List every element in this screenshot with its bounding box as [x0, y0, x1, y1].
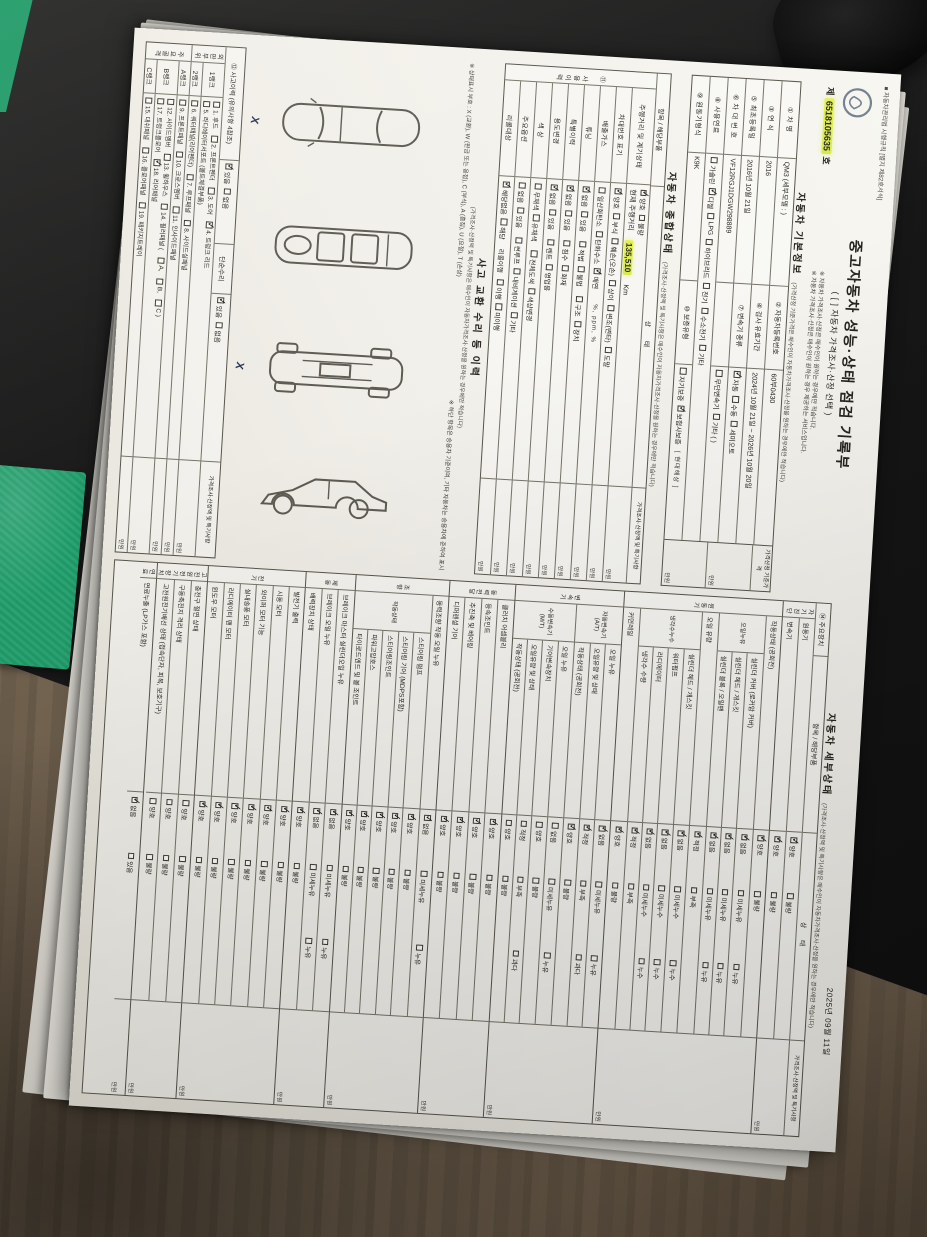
option: 없음 [720, 833, 733, 890]
option-label: 미세누수 [640, 892, 651, 917]
option: 양호 [435, 816, 448, 873]
option-label: 없음 [327, 817, 338, 830]
option-label: 없음 [707, 840, 718, 853]
checkbox [203, 101, 210, 108]
price-unit: 만원 [524, 564, 534, 575]
checkbox [565, 210, 572, 217]
car-side-view-icon [220, 458, 440, 529]
price-unit: 만원 [163, 542, 173, 553]
option-label: 미세누유 [718, 897, 729, 922]
checkbox [322, 939, 329, 946]
doc-no-prefix: 제 [825, 87, 835, 96]
group-label: 리콜이행 [496, 248, 507, 273]
checkbox [717, 963, 724, 970]
option-label: 불법 [575, 274, 586, 287]
checkbox [248, 804, 255, 811]
checkbox [552, 823, 559, 830]
checkbox [703, 282, 710, 289]
checkbox [277, 862, 284, 869]
option-label: 양호 [565, 832, 576, 845]
option: 16. 플로어패널 [138, 147, 150, 196]
checkbox [326, 865, 333, 872]
option: 화재 [559, 265, 570, 286]
option-label: 불량 [386, 877, 397, 890]
option: 부족 [574, 880, 588, 954]
checkbox [346, 810, 353, 817]
option: 자동 [731, 371, 742, 392]
checkbox [544, 952, 551, 959]
option: 양호 [276, 806, 289, 863]
option: 적정 [578, 824, 591, 881]
option: 있음 [579, 211, 590, 232]
checkbox [187, 174, 194, 181]
checkbox [473, 818, 480, 825]
option-label: 양호 [788, 845, 799, 858]
option: 양호 [610, 826, 623, 883]
checkbox [211, 136, 218, 143]
option: 불량 [140, 854, 154, 928]
option-label: 불량 [784, 901, 795, 914]
option: 11. 인사이드패널 [169, 207, 181, 261]
option-label: 불량 [530, 886, 541, 899]
option-group: 전체도색색상변경 [525, 250, 539, 321]
price-unit: 만원 [419, 1100, 429, 1111]
option-label: 전기 [700, 291, 711, 304]
option: 없음 [564, 185, 575, 206]
option: 누수 [648, 959, 662, 1031]
checkbox [497, 279, 504, 286]
checkbox [580, 880, 587, 887]
option-label: 불량 [176, 864, 187, 877]
checkbox [421, 871, 428, 878]
option: 양호 [178, 800, 191, 857]
option: 양호 [637, 190, 648, 211]
option: 3. 도어 [205, 187, 216, 215]
option-label: 양호 [454, 825, 465, 838]
checkbox [754, 891, 761, 898]
option-label: 양호 [196, 809, 207, 822]
option-label: 미세누유 [545, 887, 556, 912]
checkbox [615, 188, 622, 195]
photo-scene: 사 칼 ■ 자동차관리법 시행규칙 [별지 제82호서식] 2025년 09월 … [0, 0, 927, 1237]
option-label: 보험사보증 [674, 413, 686, 445]
price-unit: 만원 [604, 569, 614, 580]
option: 양호 [785, 837, 798, 894]
checkbox [722, 889, 729, 896]
option: 있음 [215, 297, 226, 318]
option-label: 적법 [577, 249, 588, 262]
price-cell: 만원 [483, 1021, 597, 1123]
checkbox [217, 297, 224, 304]
option-label: 양호 [612, 196, 623, 209]
checkbox [709, 188, 716, 195]
option-label: 미세누유 [323, 873, 334, 898]
checkbox [376, 812, 383, 819]
checkbox [199, 801, 206, 808]
checkbox [264, 805, 271, 812]
price-unit: 만원 [508, 563, 518, 574]
option: 없음 [580, 186, 591, 207]
checkbox [342, 866, 349, 873]
checkbox [733, 964, 740, 971]
checkbox [131, 797, 138, 804]
option-label: 무채색 [532, 192, 543, 211]
option: 누유 [727, 964, 741, 1036]
option-label: 4. 트렁크 리드 [202, 230, 213, 269]
option-label: 렌트 [545, 247, 556, 260]
option-label: 적정 [691, 840, 702, 853]
option-label: 불량 [768, 900, 779, 913]
option: 있음 [515, 207, 526, 228]
option-group: 렌트영업용 [543, 239, 556, 292]
checkbox [501, 219, 508, 226]
checkbox [702, 307, 709, 314]
option-label: 불량 [451, 881, 462, 894]
option-label: 12. 사이드멤버 [163, 107, 174, 148]
option-label: 불량 [355, 875, 366, 888]
option-label: 양호 [771, 844, 782, 857]
option: 미세누유 [716, 889, 730, 963]
option-label: 양호 [405, 822, 416, 835]
checkbox [495, 304, 502, 311]
checkbox [643, 884, 650, 891]
option: 미세누유 [320, 865, 334, 939]
checkbox [157, 98, 164, 105]
subgroup-label: 작동상태 [353, 591, 432, 634]
option: 불량 [382, 869, 396, 943]
checkbox [503, 181, 510, 188]
checkbox [424, 815, 431, 822]
checkbox [732, 396, 739, 403]
checkbox [183, 800, 190, 807]
checkbox [173, 207, 180, 214]
checkbox [150, 798, 157, 805]
option: 불량 [636, 214, 647, 235]
detail-col-header: ⑭ 주요장치 [814, 603, 831, 656]
option: 양호 [563, 823, 576, 880]
option-label: 부식 [610, 221, 621, 234]
option: 불량 [431, 871, 445, 945]
option-group: 없음있음 [515, 182, 528, 228]
checkbox [195, 857, 202, 864]
overall-rows: 주행거리 및 계기상태양호불량현재 주행거리 135,510 Km만원차대번호 … [475, 80, 656, 582]
option-label: 15. 대쉬패널 [142, 106, 153, 141]
option-label: 없음 [213, 330, 224, 343]
checkbox [519, 182, 526, 189]
checkbox [184, 220, 191, 227]
option: 미세누유 [542, 878, 556, 952]
checkbox [228, 859, 235, 866]
price-unit: 만원 [129, 540, 139, 551]
option-label: 14. 필러패널 ( [157, 212, 168, 251]
checkbox [155, 300, 162, 307]
option-label: 세미오토 [727, 429, 739, 455]
option: 불량 [288, 863, 302, 937]
option: 미세누유 [415, 870, 429, 944]
option: 7. 루프패널 [183, 174, 194, 213]
option: 없음 [547, 822, 560, 879]
option: 썬루프 [512, 237, 524, 265]
price-unit: 만원 [485, 1104, 495, 1115]
option-label: 11. 인사이드패널 [169, 215, 181, 261]
option: 세미오토 [727, 421, 739, 455]
option-group: 해당없음해당 [498, 181, 512, 240]
option-label: 적정 [518, 829, 529, 842]
option-label: 해당 [498, 227, 509, 240]
option: 불량 [239, 860, 253, 934]
option-label: 7. 루프패널 [183, 182, 194, 213]
option: 없음 [736, 834, 749, 891]
checkbox [489, 819, 496, 826]
option-label: 양호 [613, 835, 624, 848]
checkbox [654, 959, 661, 966]
option-label: 과다 [510, 959, 521, 972]
checkbox [516, 237, 523, 244]
option-label: 이행 [494, 287, 505, 300]
option-label: 양호 [438, 824, 449, 837]
option-label: 없음 [129, 805, 140, 818]
option-label: 6. 쿼터패널(리어펜더) [186, 108, 199, 167]
option: 없음 [673, 830, 686, 887]
checkbox [678, 405, 685, 412]
checkbox [513, 950, 520, 957]
checkbox [599, 187, 606, 194]
price-cell: 만원 [418, 1017, 488, 1117]
option-label: 불량 [144, 862, 155, 875]
option: 불량 [447, 873, 461, 947]
checkbox [596, 231, 603, 238]
device-group: 원동기작동상태 (공회전)양호불량오일누유실린더 커버 (로커암 커버)없음미세… [593, 592, 784, 1134]
option-label: 양호 [343, 818, 354, 831]
checkbox [470, 874, 477, 881]
option: 19. 패키지트레이 [135, 202, 147, 257]
pen-x-mark: X [233, 360, 246, 370]
checkbox [408, 814, 415, 821]
checkbox [310, 864, 317, 871]
checkbox [294, 863, 301, 870]
option: 없음 [705, 832, 718, 889]
checkbox [605, 346, 612, 353]
option: 불량 [606, 882, 620, 956]
option-label: 없음 [549, 831, 560, 844]
checkbox [486, 875, 493, 882]
checkbox [615, 826, 622, 833]
option-label: 없음 [311, 816, 322, 829]
option: 양호 [753, 835, 766, 892]
option-label: 불량 [209, 866, 220, 879]
option: 없음 [594, 825, 607, 882]
option-label: 화재 [559, 273, 570, 286]
option: 탄화수소 [593, 231, 605, 265]
option: 미세누유 [701, 888, 715, 962]
checkbox [639, 215, 646, 222]
option-label: 불량 [160, 863, 171, 876]
option-label: 불량 [401, 878, 412, 891]
option: 적정 [626, 827, 639, 884]
option: 기타 ( ) [710, 413, 722, 443]
option-label: 탄화수소 [593, 239, 605, 265]
option-label: 19. 패키지트레이 [135, 211, 147, 257]
option-label: 영업용 [543, 272, 554, 291]
option-label: 적정 [580, 833, 591, 846]
option-label: 색상변경 [525, 296, 537, 322]
option: A, [157, 257, 165, 272]
option-label: 불량 [483, 883, 494, 896]
option-label: 없음 [516, 191, 527, 204]
option-label: 해당없음 [499, 190, 511, 216]
field-extra: [ 현대해상 ] [672, 451, 683, 489]
option: 없음 [657, 829, 670, 886]
option-label: 양호 [637, 198, 648, 211]
option: 침수 [561, 240, 572, 261]
option-label: 기타 ( ) [710, 422, 721, 443]
pen-x-mark: X [248, 115, 261, 125]
option: 누유 [316, 939, 330, 1011]
option-label: 불량 [225, 867, 236, 880]
checkbox [716, 370, 723, 377]
option: 디젤 [706, 188, 717, 209]
option-label: 불량 [370, 876, 381, 889]
option-label: 없음 [548, 193, 559, 206]
checkbox [631, 827, 638, 834]
checkbox [609, 280, 616, 287]
option-label: 부족 [625, 892, 636, 905]
option-group: 있음없음 [213, 297, 226, 343]
option: 9. 프론트패널 [176, 99, 188, 144]
option: 불량 [336, 866, 350, 940]
checkbox [453, 873, 460, 880]
option: 2. 프론트펜더 [207, 136, 219, 181]
option: 15. 대쉬패널 [142, 97, 154, 140]
option-group: 무채색유채색 [530, 183, 544, 242]
option-label: 불량 [275, 870, 286, 883]
option-label: 양호 [389, 821, 400, 834]
option: 10. 크로스멤버 [172, 151, 184, 200]
option: 없음 [221, 188, 232, 209]
checkbox [179, 99, 186, 106]
price-unit: 만원 [492, 562, 502, 573]
option: 양호 [500, 820, 513, 877]
price-unit: 만원 [178, 1086, 188, 1097]
checkbox [564, 879, 571, 886]
checkbox [404, 870, 411, 877]
option-label: 불량 [242, 868, 253, 881]
option-label: 일산화탄소 [595, 195, 607, 227]
checkbox [575, 954, 582, 961]
option: 양호 [194, 801, 207, 858]
option-label: 불량 [193, 865, 204, 878]
checkbox [707, 213, 714, 220]
checkbox [551, 184, 558, 191]
checkbox [521, 821, 528, 828]
checkbox [575, 321, 582, 328]
option: 해당 [498, 219, 509, 240]
checkbox [392, 813, 399, 820]
option-label: 누유 [731, 972, 742, 985]
option-label: 누유 [715, 971, 726, 984]
option-label: 없음 [644, 837, 655, 850]
checkbox [583, 186, 590, 193]
option: 양호 [145, 798, 158, 855]
checkbox [502, 876, 509, 883]
checkbox [628, 883, 635, 890]
option: 과다 [507, 950, 521, 1022]
option-group: 자동수동세미오토 [727, 371, 742, 455]
option: 양호 [259, 805, 272, 862]
option: 누수 [664, 960, 678, 1032]
checkbox [457, 817, 464, 824]
option-label: 과다 [572, 962, 583, 975]
option-label: 불량 [562, 888, 573, 901]
option-label: 있음 [215, 305, 226, 318]
option-label: 미이행 [492, 312, 503, 331]
checkbox [706, 239, 713, 246]
rank-label: 2랭크 [190, 62, 203, 97]
option-label: 누유 [699, 970, 710, 983]
option-label: 없음 [221, 197, 232, 210]
option-label: 있음 [563, 218, 574, 231]
option-label: 불량 [499, 884, 510, 897]
checkbox [608, 305, 615, 312]
checkbox [738, 890, 745, 897]
option: 부족 [622, 883, 636, 957]
checkbox [568, 824, 575, 831]
option: 4. 트렁크 리드 [202, 222, 214, 269]
option-label: 2. 프론트펜더 [207, 144, 218, 181]
checkbox [639, 958, 646, 965]
option: 누유 [538, 952, 552, 1024]
checkbox [146, 854, 153, 861]
option: 일산화탄소 [595, 187, 607, 227]
option: 양호 [371, 812, 384, 869]
checkbox [531, 250, 538, 257]
price-cell: 만원 [593, 1028, 756, 1133]
checkbox [176, 151, 183, 158]
option: 없음 [419, 815, 432, 872]
price-unit: 만원 [117, 539, 127, 550]
checkbox [563, 240, 570, 247]
checkbox [710, 832, 717, 839]
checkbox [158, 257, 165, 264]
option: 양호 [210, 802, 223, 859]
option: 누유 [712, 963, 726, 1035]
option: 수소전기 [698, 307, 710, 341]
option: 전기 [700, 282, 711, 303]
checkbox [770, 892, 777, 899]
checkbox [612, 238, 619, 245]
checkbox [511, 312, 518, 319]
option: 불량 [398, 869, 412, 943]
checkbox [790, 837, 797, 844]
basic-price-column: 가격산정 기준가격 만원 만원 [661, 540, 774, 593]
option: 불량 [781, 893, 795, 967]
units-text: %, ppm, % [589, 304, 598, 343]
option: 불량 [206, 858, 220, 932]
option: 없음 [516, 182, 527, 203]
price-unit: 만원 [476, 561, 486, 572]
option-label: 양호 [180, 808, 191, 821]
field-label: ② 자동차등록번호 [765, 285, 788, 370]
option: 없음 [309, 808, 322, 865]
checkbox [208, 188, 215, 195]
option-label: 양호 [755, 843, 766, 856]
option: C ) [154, 300, 162, 317]
option: 하이브리드 [702, 239, 714, 279]
option-label: 부족 [577, 889, 588, 902]
price-unit: 만원 [110, 1081, 120, 1092]
option: 색상변경 [525, 288, 537, 322]
option: 있음 [122, 853, 136, 927]
